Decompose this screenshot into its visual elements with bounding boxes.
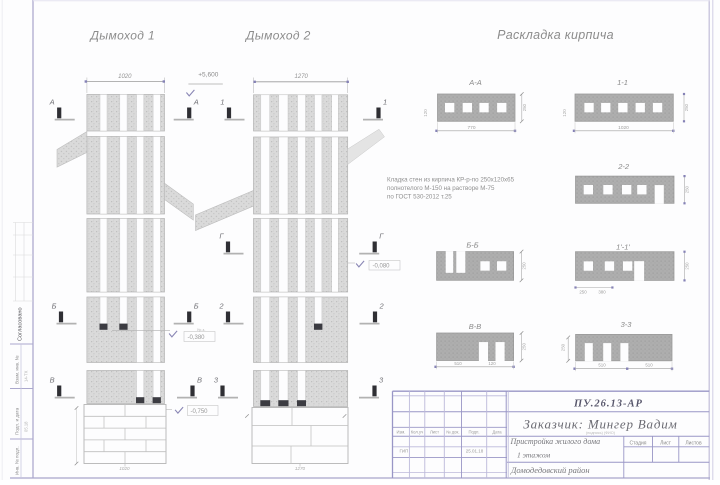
svg-text:Кладка стен из кирпича КР-р-по: Кладка стен из кирпича КР-р-по 250х120х6… [387,177,515,184]
svg-text:А: А [49,98,55,107]
svg-text:250: 250 [561,343,566,351]
svg-text:120: 120 [488,361,496,366]
svg-text:1 этажом: 1 этажом [517,451,550,460]
svg-text:1270: 1270 [295,74,309,80]
svg-text:3-3: 3-3 [621,320,633,329]
svg-text:+5,600: +5,600 [198,72,218,79]
svg-text:1270: 1270 [295,466,306,471]
svg-text:А: А [193,98,199,107]
svg-text:510: 510 [598,363,606,368]
svg-text:Дата: Дата [492,429,502,434]
svg-text:полнотелого М-150 на растворе: полнотелого М-150 на растворе М-75 [387,185,495,192]
svg-text:2: 2 [379,302,385,311]
svg-text:1: 1 [220,98,224,107]
svg-text:-0,380: -0,380 [188,335,206,341]
svg-text:250: 250 [522,262,527,270]
svg-text:Б: Б [194,302,199,311]
svg-text:510: 510 [454,361,462,366]
svg-text:Листов: Листов [685,440,702,446]
svg-text:1-1: 1-1 [617,78,628,87]
svg-text:1'-1': 1'-1' [616,243,630,252]
svg-text:2-2: 2-2 [617,162,630,171]
svg-text:Дымоход 2: Дымоход 2 [244,29,311,43]
svg-text:Инв. № подл.: Инв. № подл. [15,446,20,475]
svg-text:250: 250 [684,103,689,111]
svg-text:Раскладка кирпича: Раскладка кирпича [497,28,614,42]
svg-text:250: 250 [685,186,690,194]
svg-text:Домодедовский район: Домодедовский район [510,465,590,475]
svg-text:№ док.: № док. [446,429,459,434]
svg-text:-0,750: -0,750 [191,409,209,415]
svg-text:В-В: В-В [469,322,482,331]
svg-text:120: 120 [562,109,567,117]
svg-text:Пристройка жилого дома: Пристройка жилого дома [510,437,601,446]
svg-text:по ГОСТ 530-2012 т.25: по ГОСТ 530-2012 т.25 [387,194,452,201]
svg-text:Кол.уч: Кол.уч [411,429,424,434]
svg-text:510: 510 [645,363,653,368]
svg-text:250: 250 [522,103,527,111]
svg-text:Стадия: Стадия [629,440,646,446]
svg-text:1: 1 [383,98,387,107]
svg-text:Б-Б: Б-Б [466,241,478,250]
svg-text:14-ТХ: 14-ТХ [24,370,29,382]
svg-text:1020: 1020 [118,74,132,80]
svg-text:ГИП: ГИП [400,448,409,453]
svg-text:(подпись) (ФИО): (подпись) (ФИО) [586,431,616,435]
svg-text:380: 380 [598,290,606,295]
svg-text:Подп. и дата: Подп. и дата [15,407,20,435]
svg-text:В: В [197,376,202,385]
svg-text:Заказчик: Мингер Вадим: Заказчик: Мингер Вадим [523,417,677,432]
svg-text:А-А: А-А [468,78,482,87]
svg-text:Изм.: Изм. [397,429,406,434]
svg-text:1020: 1020 [618,125,629,131]
svg-text:Взам. инв. №: Взам. инв. № [15,355,20,384]
svg-text:-0,080: -0,080 [373,264,391,270]
svg-text:1020: 1020 [119,466,130,471]
svg-text:250: 250 [522,343,527,351]
svg-text:25.01.18: 25.01.18 [466,448,484,453]
svg-text:В: В [50,376,55,385]
svg-text:05.18: 05.18 [24,421,29,432]
svg-text:120: 120 [423,109,428,117]
svg-text:Дымоход 1: Дымоход 1 [88,29,155,43]
svg-text:ПУ.26.13-АР: ПУ.26.13-АР [573,399,643,410]
svg-text:Согласовано: Согласовано [18,307,24,341]
svg-text:Лист: Лист [660,440,672,446]
svg-text:770: 770 [467,125,475,131]
svg-text:250: 250 [579,290,587,295]
svg-text:250: 250 [685,262,690,270]
svg-text:Б: Б [52,302,57,311]
svg-text:Подп.: Подп. [468,429,479,434]
svg-text:Лист: Лист [430,429,439,434]
svg-text:2: 2 [218,302,224,311]
